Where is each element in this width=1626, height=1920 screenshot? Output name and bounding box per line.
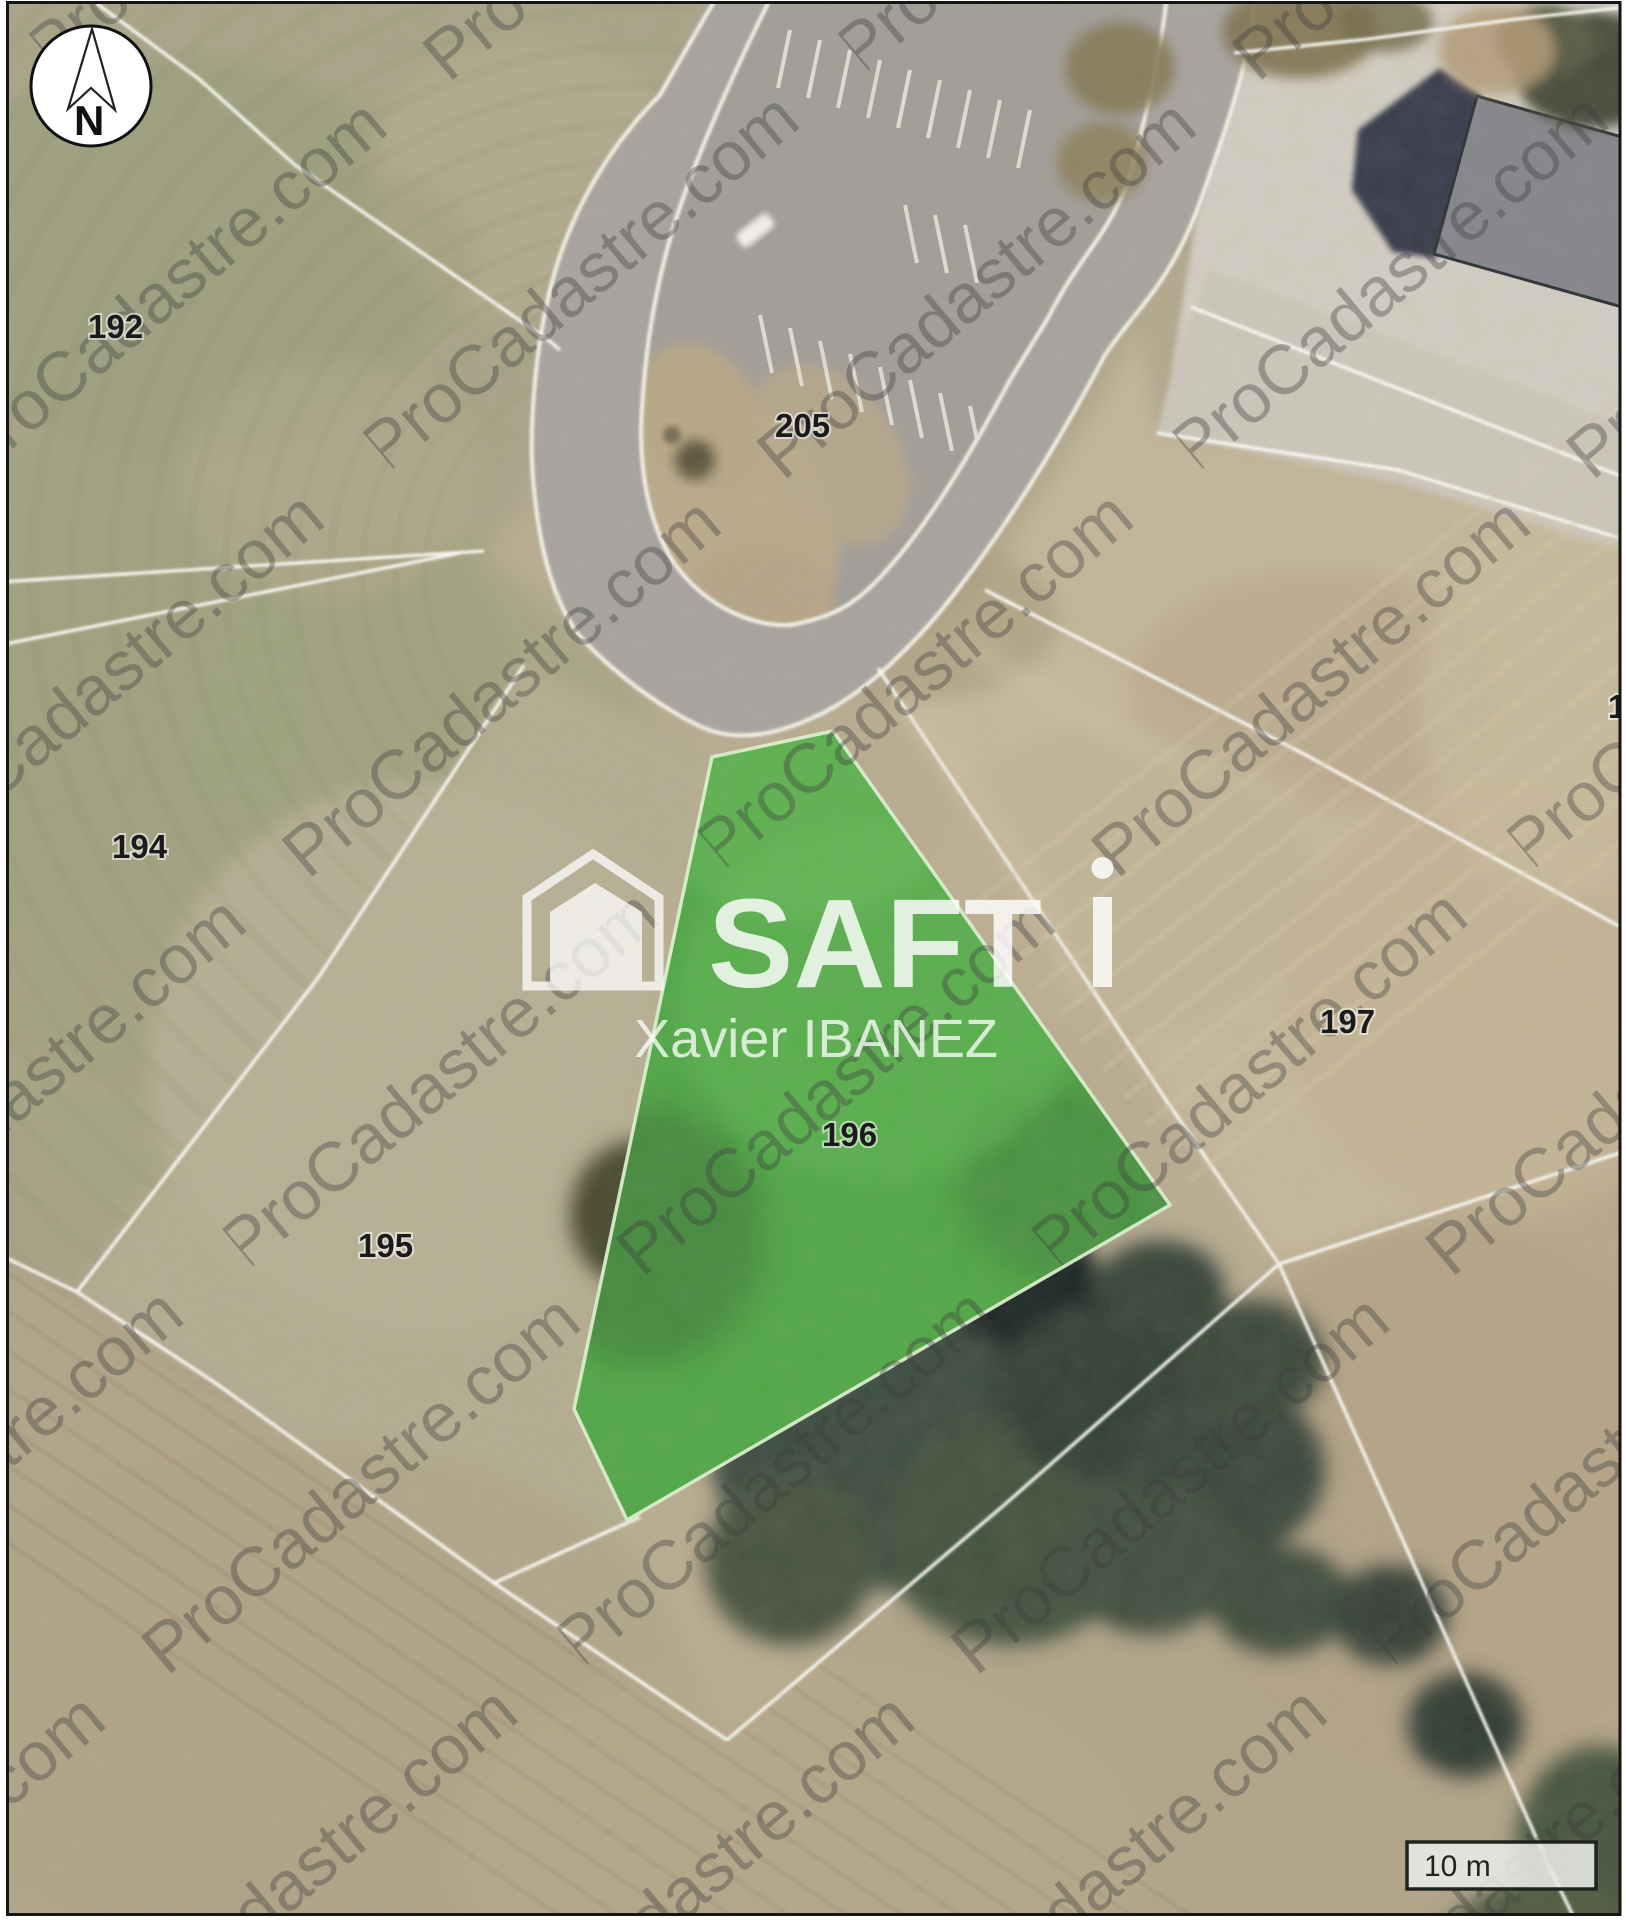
- svg-text:N: N: [74, 97, 104, 144]
- svg-text:Xavier IBANEZ: Xavier IBANEZ: [634, 1009, 998, 1069]
- svg-text:194: 194: [112, 828, 168, 865]
- svg-text:197: 197: [1320, 1003, 1375, 1040]
- svg-text:SAFT: SAFT: [708, 873, 1042, 1014]
- svg-text:10 m: 10 m: [1424, 1850, 1491, 1883]
- svg-text:196: 196: [822, 1116, 877, 1153]
- svg-text:192: 192: [88, 308, 143, 345]
- svg-text:205: 205: [775, 407, 830, 444]
- svg-text:195: 195: [358, 1227, 413, 1264]
